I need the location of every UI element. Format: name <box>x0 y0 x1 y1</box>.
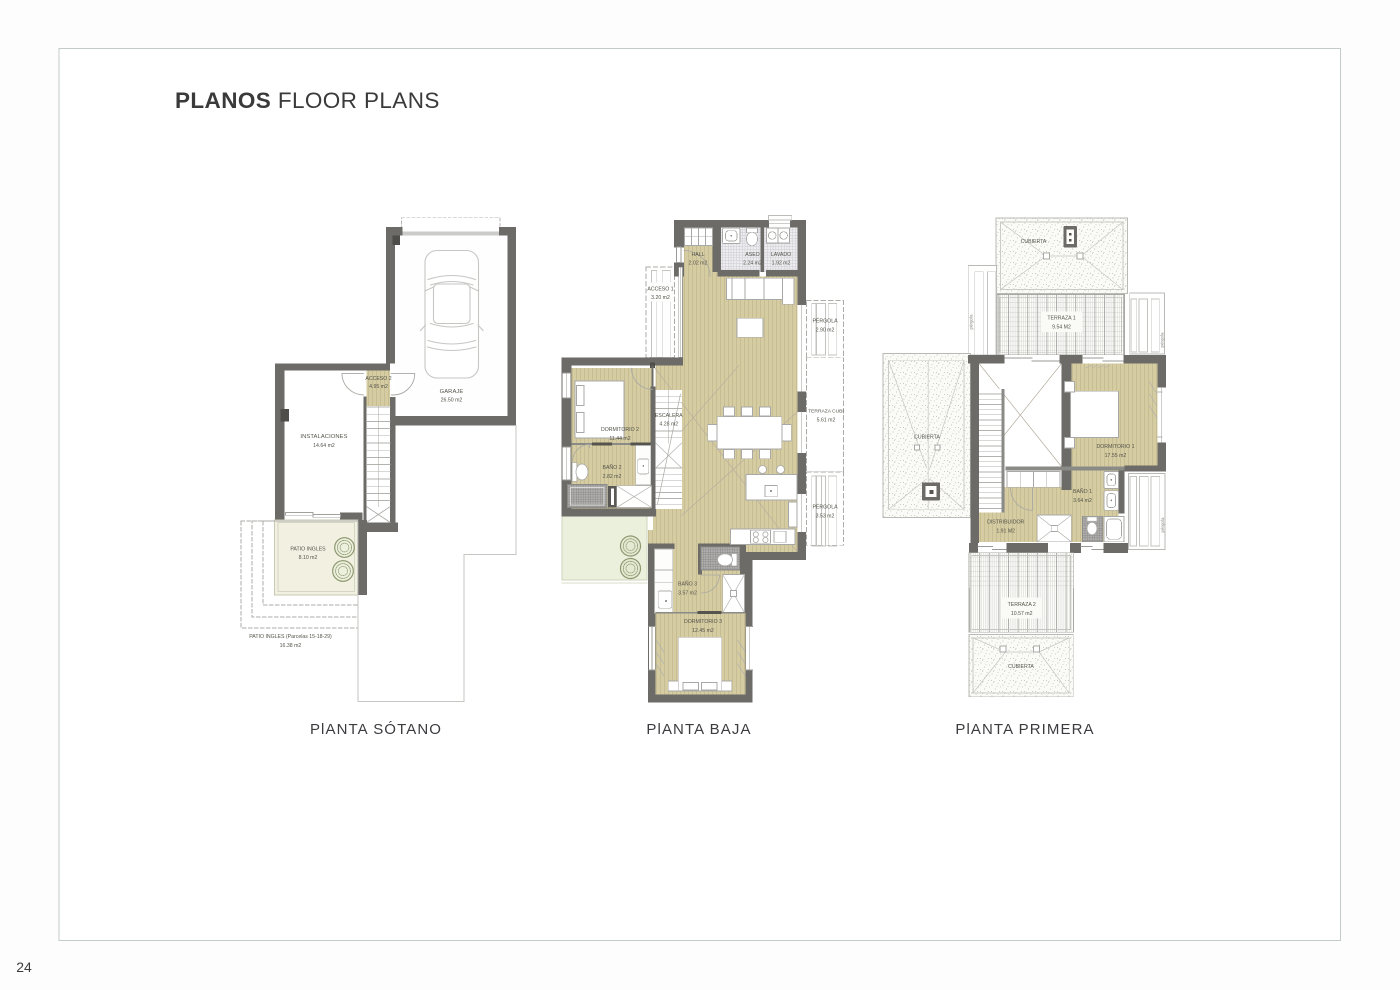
svg-text:TERRAZA CUBI: TERRAZA CUBI <box>808 409 844 415</box>
svg-text:PlANTA PRIMERA: PlANTA PRIMERA <box>955 721 1094 738</box>
svg-text:14.64 m2: 14.64 m2 <box>313 443 335 449</box>
svg-text:HALL: HALL <box>692 252 705 258</box>
svg-text:TERRAZA 2: TERRAZA 2 <box>1008 602 1036 608</box>
svg-text:pérgola: pérgola <box>1160 332 1165 348</box>
svg-text:9.54 M2: 9.54 M2 <box>1052 325 1071 331</box>
svg-text:17.55 m2: 17.55 m2 <box>1105 453 1127 459</box>
svg-text:16.38 m2: 16.38 m2 <box>280 643 302 649</box>
svg-text:ESCALERA: ESCALERA <box>655 413 683 419</box>
svg-text:DORMITORIO 1: DORMITORIO 1 <box>1097 444 1135 450</box>
svg-text:INSTALACIONES: INSTALACIONES <box>300 434 347 440</box>
svg-text:PlANTA SÓTANO: PlANTA SÓTANO <box>310 721 442 738</box>
svg-text:GARAJE: GARAJE <box>440 389 464 395</box>
svg-text:26.50 m2: 26.50 m2 <box>441 398 463 404</box>
svg-text:CUBIERTA: CUBIERTA <box>1008 664 1034 670</box>
svg-text:2.82 m2: 2.82 m2 <box>603 474 622 480</box>
svg-text:BAÑO 2: BAÑO 2 <box>602 464 621 471</box>
svg-text:DORMITORIO 3: DORMITORIO 3 <box>684 619 722 625</box>
svg-text:ACCESO 2: ACCESO 2 <box>365 376 391 382</box>
svg-text:pérgola: pérgola <box>969 314 974 330</box>
svg-text:BAÑO 3: BAÑO 3 <box>678 581 697 588</box>
svg-text:PATIO INGLES: PATIO INGLES <box>290 547 326 553</box>
svg-text:5.61 m2: 5.61 m2 <box>817 418 836 424</box>
svg-text:4.28 m2: 4.28 m2 <box>659 422 678 428</box>
svg-text:24: 24 <box>16 959 32 975</box>
svg-text:TERRAZA 1: TERRAZA 1 <box>1047 316 1075 322</box>
svg-text:3.53 m2: 3.53 m2 <box>816 514 835 520</box>
svg-text:8.10 m2: 8.10 m2 <box>299 555 318 561</box>
svg-text:PLANOS FLOOR PLANS: PLANOS FLOOR PLANS <box>175 88 440 113</box>
svg-text:1.92 m2: 1.92 m2 <box>772 261 791 267</box>
svg-text:2.02 m2: 2.02 m2 <box>689 261 708 267</box>
svg-text:3.64 m2: 3.64 m2 <box>1073 498 1092 504</box>
svg-text:12.45 m2: 12.45 m2 <box>692 628 714 634</box>
svg-text:PÉRGOLA: PÉRGOLA <box>812 504 838 511</box>
svg-text:4.95 m2: 4.95 m2 <box>369 384 388 390</box>
svg-text:2.24 m2: 2.24 m2 <box>743 261 762 267</box>
svg-text:ACCESO 1: ACCESO 1 <box>647 287 673 293</box>
svg-text:LAVADO: LAVADO <box>771 252 791 258</box>
svg-text:pérgola: pérgola <box>1160 517 1165 533</box>
svg-text:DISTRIBUIDOR: DISTRIBUIDOR <box>987 520 1024 526</box>
svg-text:PÉRGOLA: PÉRGOLA <box>812 318 838 325</box>
svg-text:10.57 m2: 10.57 m2 <box>1011 611 1033 617</box>
svg-text:1.91 M2: 1.91 M2 <box>996 529 1015 535</box>
svg-text:BAÑO 1: BAÑO 1 <box>1073 488 1092 495</box>
svg-text:PATIO INGLES (Parcelas 15-18-2: PATIO INGLES (Parcelas 15-18-29) <box>249 634 332 640</box>
svg-text:CUBIERTA: CUBIERTA <box>1021 239 1047 245</box>
svg-text:3.20 m2: 3.20 m2 <box>651 295 670 301</box>
svg-text:DORMITORIO 2: DORMITORIO 2 <box>601 427 639 433</box>
svg-text:3.57 m2: 3.57 m2 <box>678 591 697 597</box>
svg-text:ASEO: ASEO <box>745 252 759 258</box>
svg-text:11.44 m2: 11.44 m2 <box>609 436 630 442</box>
svg-text:CUBIERTA: CUBIERTA <box>914 435 940 441</box>
svg-text:PlANTA BAJA: PlANTA BAJA <box>646 721 751 738</box>
svg-text:2.90 m2: 2.90 m2 <box>816 328 835 334</box>
